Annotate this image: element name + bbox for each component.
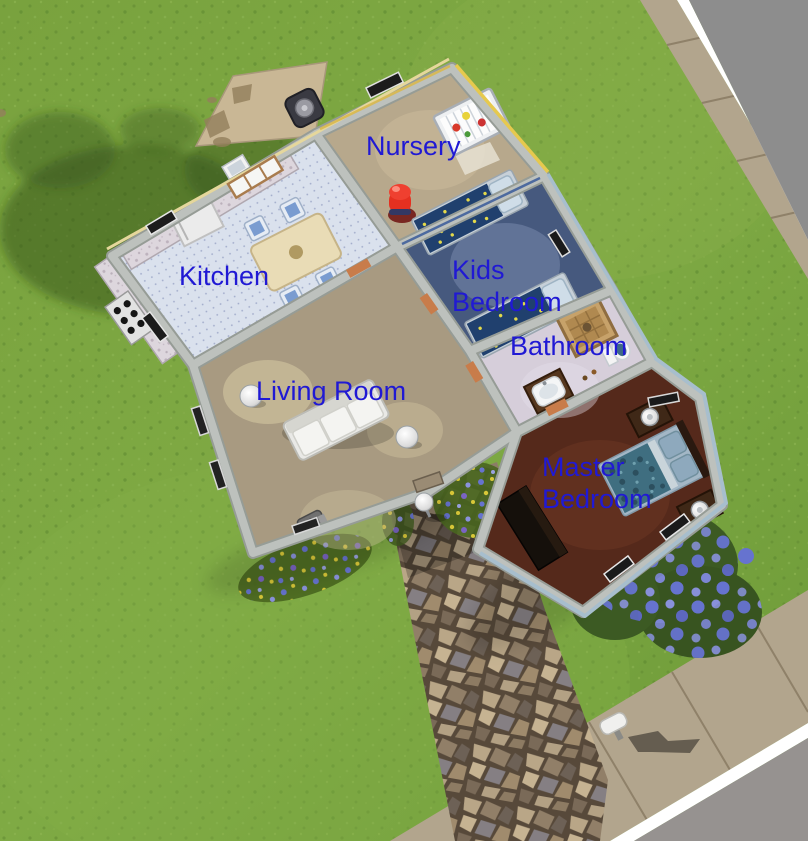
room-label-living-room: Living Room [256, 375, 406, 407]
scene-canvas [0, 0, 808, 841]
room-label-master-bedroom: Master Bedroom [542, 451, 652, 515]
room-label-nursery: Nursery [366, 130, 461, 162]
hydrangea-bloom [738, 548, 754, 564]
room-label-kids-bedroom: Kids Bedroom [452, 254, 562, 318]
room-label-bathroom: Bathroom [510, 330, 627, 362]
room-label-kitchen: Kitchen [179, 260, 269, 292]
sims-lot-overhead-view: Nursery Kitchen Kids Bedroom Bathroom Li… [0, 0, 808, 841]
